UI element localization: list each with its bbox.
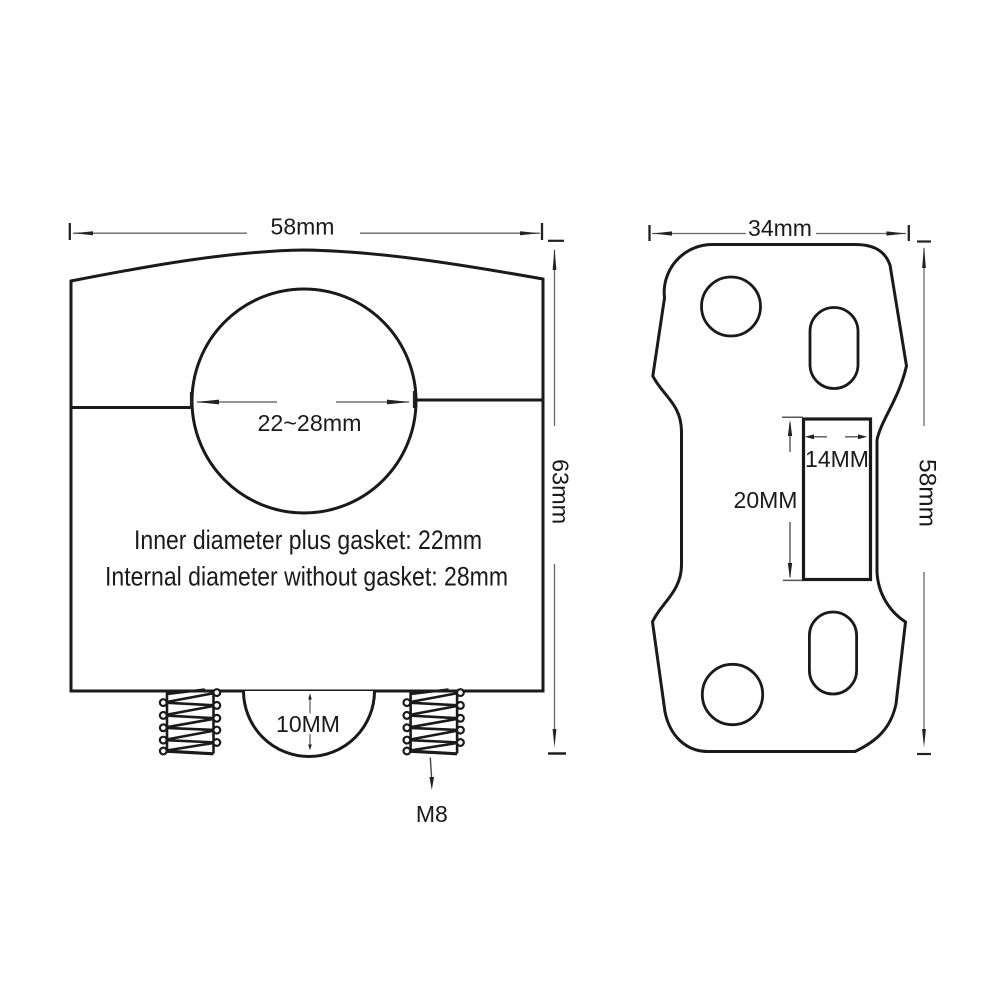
svg-text:63mm: 63mm	[547, 459, 573, 524]
svg-text:58mm: 58mm	[271, 213, 335, 239]
svg-text:20MM: 20MM	[734, 487, 798, 513]
svg-text:Internal diameter without gask: Internal diameter without gasket: 28mm	[105, 561, 508, 591]
svg-text:14MM: 14MM	[805, 446, 869, 472]
svg-text:10MM: 10MM	[276, 711, 340, 737]
svg-text:34mm: 34mm	[748, 215, 812, 241]
svg-text:Inner diameter plus gasket: 22: Inner diameter plus gasket: 22mm	[134, 525, 482, 555]
svg-text:22~28mm: 22~28mm	[258, 410, 362, 436]
svg-text:58mm: 58mm	[914, 459, 941, 527]
svg-text:M8: M8	[416, 801, 448, 827]
